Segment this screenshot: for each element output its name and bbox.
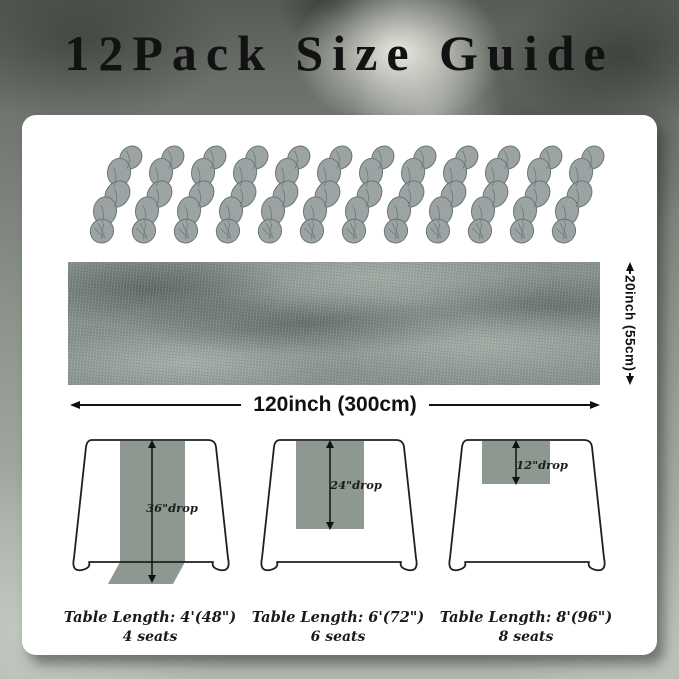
table-figure-4ft: 36"drop Table Length: 4'(48") 4 seats [60,433,240,655]
dimension-line [429,404,590,406]
seats-label: 8 seats [436,629,616,645]
length-label: 120inch (300cm) [241,393,428,417]
dimension-line [80,404,241,406]
arrow-left-icon [70,401,80,409]
height-dimension: 20inch (55cm) [608,262,652,385]
table-figure-8ft: 12"drop Table Length: 8'(96") 8 seats [436,433,616,655]
drop-label: 24"drop [330,478,382,492]
bundle-row [90,141,602,257]
size-guide-infographic: 12Pack Size Guide [0,0,679,679]
arrow-up-icon [626,262,634,271]
length-dimension: 120inch (300cm) [70,393,600,417]
arrow-right-icon [590,401,600,409]
height-label: 20inch (55cm) [623,275,638,372]
table-diagram [441,433,611,585]
dimension-line [629,271,631,274]
table-length-label: Table Length: 8'(96") [436,609,616,626]
page-title: 12Pack Size Guide [0,26,679,80]
table-length-label: Table Length: 4'(48") [60,609,240,626]
drop-label: 36"drop [146,501,198,515]
guide-card: 20inch (55cm) 120inch (300cm) 36"drop Ta… [22,115,657,655]
table-diagram [253,433,423,585]
runner-fabric-photo [68,262,600,385]
table-diagram [65,433,235,618]
table-figure-6ft: 24"drop Table Length: 6'(72") 6 seats [248,433,428,655]
seats-label: 6 seats [248,629,428,645]
table-length-label: Table Length: 6'(72") [248,609,428,626]
arrow-down-icon [626,376,634,385]
seats-label: 4 seats [60,629,240,645]
drop-label: 12"drop [516,458,568,472]
